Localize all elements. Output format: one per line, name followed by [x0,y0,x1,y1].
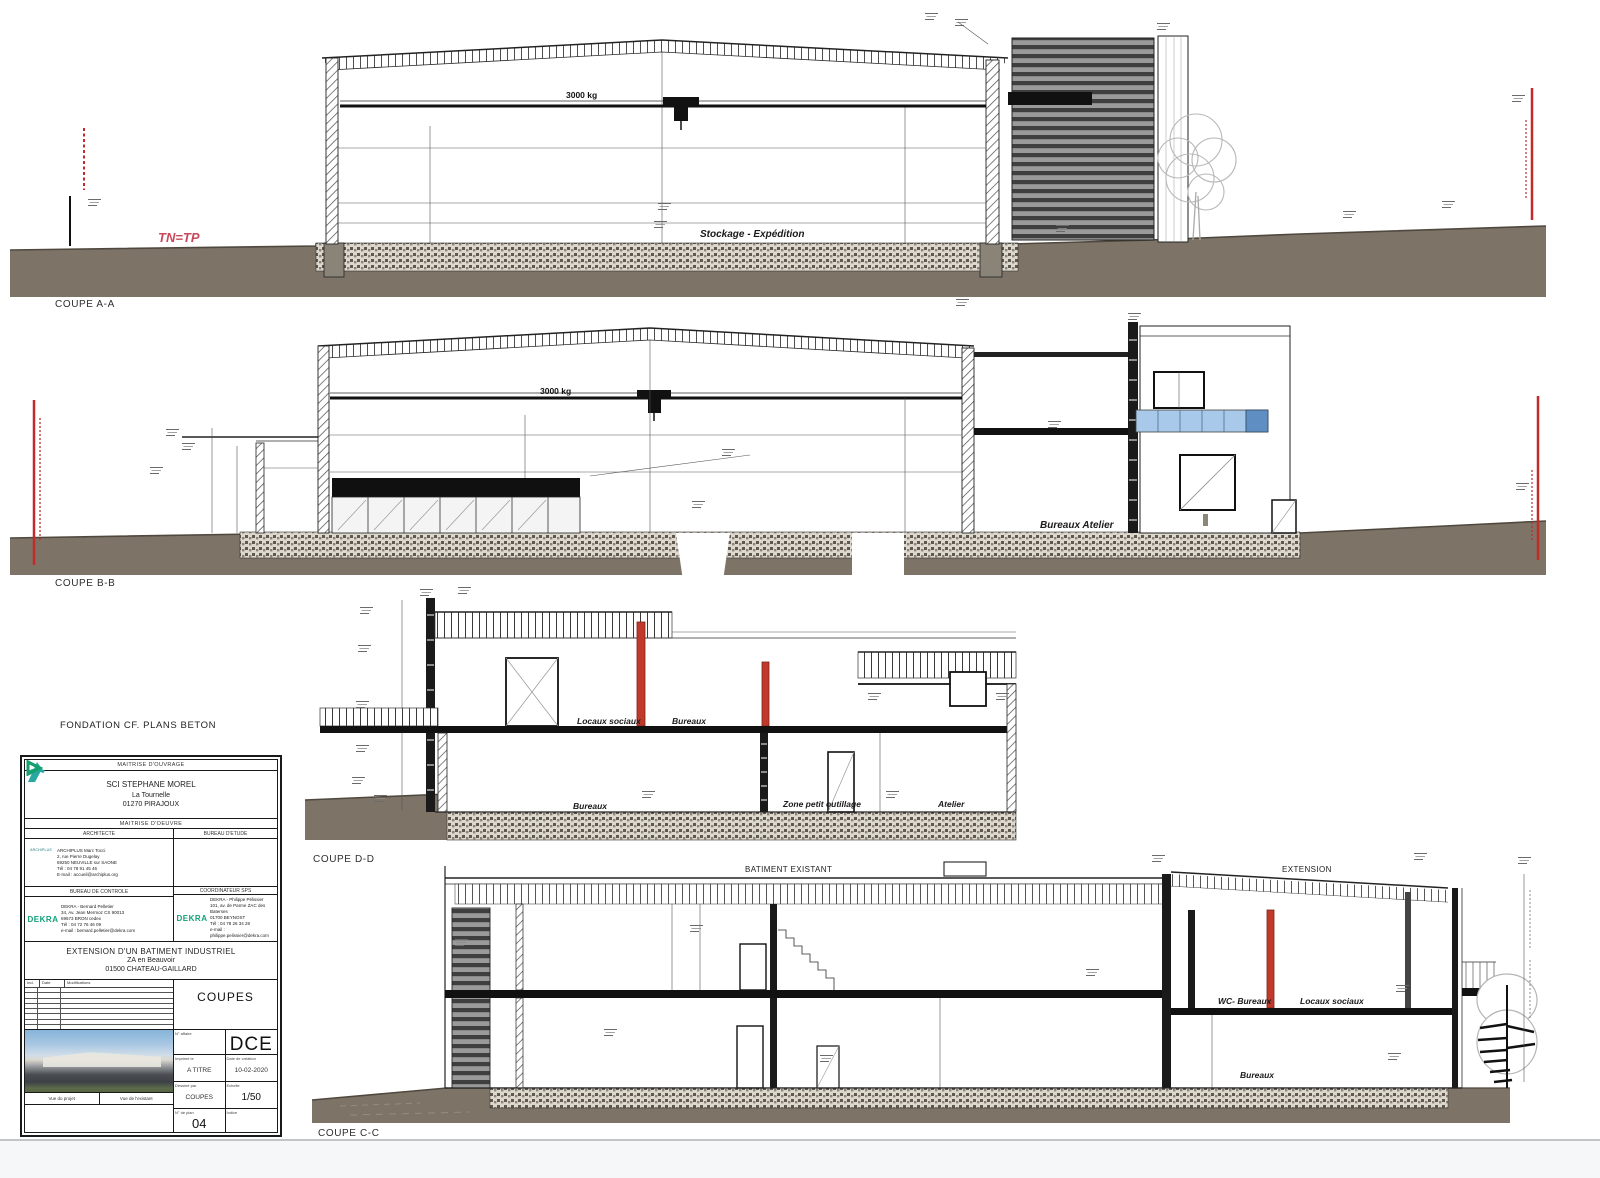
sps-cell: COORDINATEUR SPS DEKRA DEKRA - Philippe … [174,887,277,941]
ground-note-tn-tp: TN=TP [158,230,200,245]
owner-line2: La Tournelle [132,791,170,800]
photo-caption-right: Vue de l'existant [100,1093,174,1104]
moe-header: MAITRISE D'OEUVRE [25,819,277,830]
section-c-drawing: BATIMENT EXISTANT EXTENSION WC- Bureaux … [312,854,1537,1140]
crane-b-icon [637,390,671,421]
phase-cell: DCE [226,1030,278,1054]
owner-line3: 01270 PIRAJOUX [123,800,179,809]
room-label-bureaux-upper-d: Bureaux [672,716,707,726]
room-label-locaux-sociaux-d: Locaux sociaux [577,716,642,726]
drawing-sheet: 3000 kg Stockage - Expédition TN=TP COUP… [0,0,1600,1178]
room-label-bureaux-c: Bureaux [1240,1070,1275,1080]
room-label-atelier: Atelier [937,799,965,809]
scale-cell: Echelle 1/50 [226,1082,278,1108]
indice-cell: Indice [226,1109,277,1132]
architect-address: ARCHIPLUS Marc Tocci 2, rue Pierre Dugel… [57,848,118,878]
affaire-cell: N° affaire [174,1030,226,1054]
section-label-d: COUPE D-D [313,854,375,865]
section-d-drawing: Locaux sociaux Bureaux Bureaux Zone peti… [305,588,1016,866]
archiplus-logo-icon: ARCHIPLUS [28,848,54,878]
control-header: BUREAU DE CONTROLE [25,887,173,897]
drawn-cell: Dessiné par COUPES [174,1082,226,1108]
architect-header: ARCHITECTE [25,829,173,839]
plan-number-cell: N° de plan 04 [174,1109,226,1132]
dekra-logo-text: DEKRA [28,915,59,924]
spiral-staircase [1462,962,1537,1088]
archiplus-logo-text: ARCHIPLUS [30,848,52,852]
owner-name: SCI STEPHANE MOREL [106,780,195,789]
bet-cell: BUREAU D'ETUDE [174,829,277,886]
sps-address: DEKRA - Philippe Pélissier 101, av. de P… [210,897,274,939]
crane-a-icon [663,97,699,130]
project-title: EXTENSION D'UN BATIMENT INDUSTRIEL [66,947,235,956]
fondation-note: FONDATION CF. PLANS BETON [60,720,216,731]
room-label-bureaux-lower-d: Bureaux [573,801,608,811]
section-b-drawing: 3000 kg Bureaux Atelier COUPE B-B [10,300,1546,656]
dekra-logo-icon: DEKRA [177,914,207,923]
section-label-c: COUPE C-C [318,1128,380,1139]
control-cell: BUREAU DE CONTROLE DEKRA DEKRA - Bernard… [25,887,174,941]
project-photo [25,1030,173,1093]
revision-table: Ind. Date Modifications [25,980,174,1029]
steel-column-red [762,662,769,726]
photo-caption-left: Vue du projet [25,1093,100,1104]
room-label-wc-bureaux: WC- Bureaux [1218,996,1273,1006]
section-label-b: COUPE B-B [55,578,115,589]
project-cell: EXTENSION D'UN BATIMENT INDUSTRIEL ZA en… [25,942,277,980]
crane-capacity-a: 3000 kg [566,90,597,100]
control-address: DEKRA - Bernard Pelletier 34, Av. Jean M… [61,904,135,934]
sps-header: COORDINATEUR SPS [174,887,277,895]
title-block: MAITRISE D'OUVRAGE SCI STEPHANE MOREL La… [20,755,282,1137]
room-label-zone-outillage: Zone petit outillage [782,799,861,809]
owner-header: MAITRISE D'OUVRAGE [25,760,277,771]
room-label-stockage: Stockage - Expédition [700,229,804,240]
dekra-logo-icon: DEKRA [28,915,58,924]
dekra-logo-text: DEKRA [177,914,208,923]
crane-capacity-b: 3000 kg [540,386,571,396]
project-line2: ZA en Beauvoir [127,956,175,965]
zone-label-existing: BATIMENT EXISTANT [745,865,832,874]
owner-cell: SCI STEPHANE MOREL La Tournelle 01270 PI… [25,771,277,819]
print-cell: Imprimé le A TITRE [174,1055,226,1081]
drawing-title: COUPES [174,980,277,1029]
steel-column-red [1267,910,1274,1008]
steel-column-red [637,622,645,726]
room-label-locaux-sociaux-c: Locaux sociaux [1300,996,1365,1006]
bet-header: BUREAU D'ETUDE [174,829,277,839]
architect-cell: ARCHITECTE ARCHIPLUS ARCHIPLUS Marc Tocc… [25,829,174,886]
stair-steps [778,930,834,990]
date-cell: Date de création 10-02-2020 [226,1055,278,1081]
room-label-bureaux-atelier: Bureaux Atelier [1040,520,1115,531]
zone-label-extension: EXTENSION [1282,865,1332,874]
section-a-drawing: 3000 kg Stockage - Expédition TN=TP COUP… [10,14,1546,311]
project-line3: 01500 CHATEAU-GAILLARD [105,965,196,974]
section-label-a: COUPE A-A [55,299,115,310]
